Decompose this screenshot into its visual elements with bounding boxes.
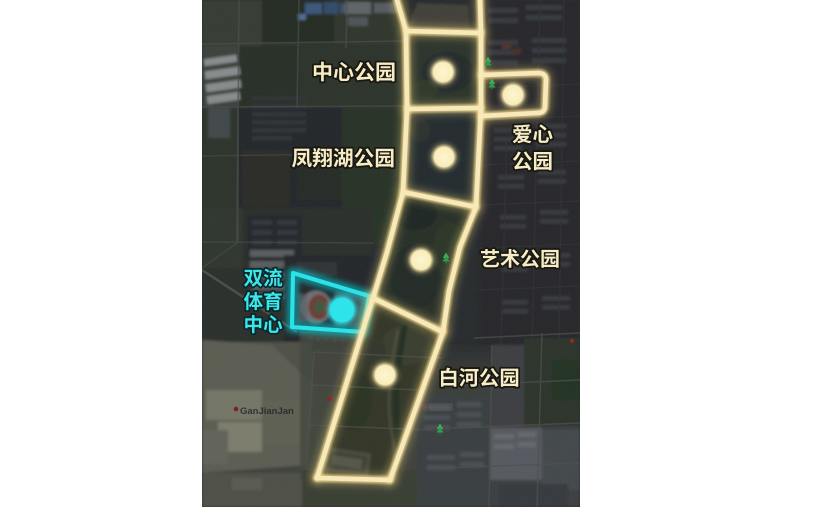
- svg-text:GanJianJan: GanJianJan: [240, 406, 294, 417]
